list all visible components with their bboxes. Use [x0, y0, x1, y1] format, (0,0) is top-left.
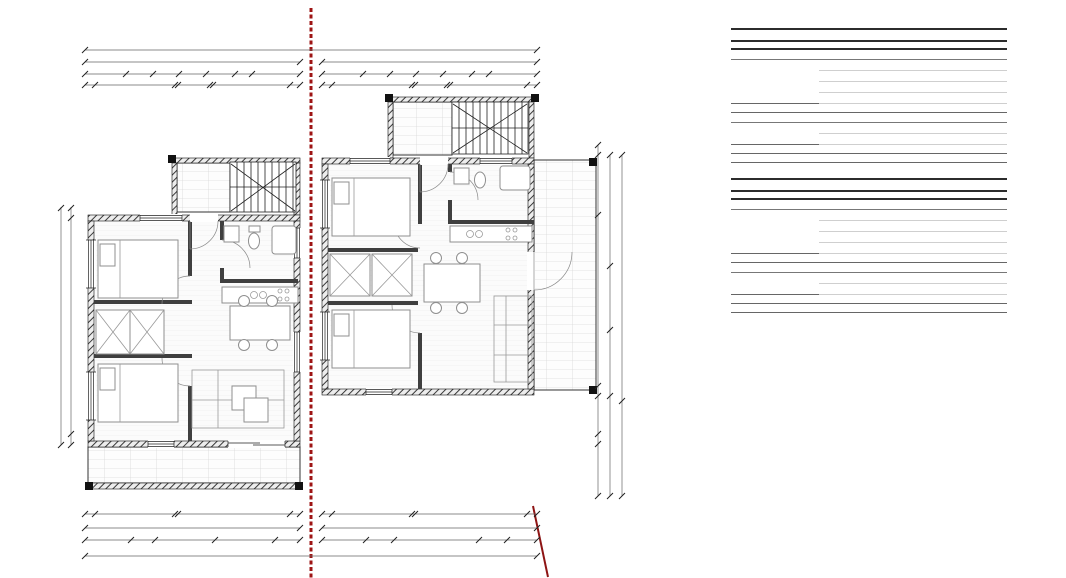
terrace-b [534, 160, 596, 390]
cell-povrsina [939, 232, 1007, 243]
cell-povrsina [939, 210, 1007, 221]
cell-prostorija [819, 134, 939, 145]
cell-prostorija [819, 273, 939, 284]
cell-pozicija [731, 134, 819, 145]
subtotal-value [939, 254, 1007, 263]
cell-povrsina [939, 284, 1007, 295]
area-table-kuca-b [731, 178, 1007, 313]
cell-prostorija [819, 82, 939, 93]
cell-povrsina [939, 82, 1007, 93]
subtotal-value [939, 145, 1007, 154]
subtotal-value [939, 104, 1007, 113]
cell-prostorija [819, 232, 939, 243]
table-row [731, 273, 1007, 284]
cell-pozicija [731, 221, 819, 232]
cell-prostorija [819, 243, 939, 254]
subtotal-row [731, 104, 1007, 113]
table-row [731, 123, 1007, 134]
cell-pozicija [731, 60, 819, 71]
table-row [731, 210, 1007, 221]
floor-plan-drawing [0, 0, 670, 578]
table-row [731, 82, 1007, 93]
floor-plan-page [0, 0, 1066, 578]
table-row [731, 134, 1007, 145]
cell-povrsina [939, 60, 1007, 71]
subtotal-row [731, 145, 1007, 154]
table-row [731, 232, 1007, 243]
cell-povrsina [939, 221, 1007, 232]
col-header-pozicija [731, 191, 819, 199]
total-row [731, 154, 1007, 163]
col-header-pozicija [731, 41, 819, 49]
section-label [731, 263, 1007, 273]
cell-pozicija [731, 284, 819, 295]
staircase-b [452, 102, 528, 154]
cell-povrsina [939, 134, 1007, 145]
area-table-kuca-a [731, 28, 1007, 163]
cell-prostorija [819, 71, 939, 82]
cell-pozicija [731, 82, 819, 93]
cell-prostorija [819, 284, 939, 295]
cell-povrsina [939, 93, 1007, 104]
table-a-title [731, 29, 1007, 41]
section-label [731, 113, 1007, 123]
section-label [731, 49, 1007, 60]
maison-logo [786, 452, 1066, 467]
cell-prostorija [819, 93, 939, 104]
cell-pozicija [731, 243, 819, 254]
col-header-povrsina [939, 191, 1007, 199]
cell-pozicija [731, 71, 819, 82]
table-row [731, 71, 1007, 82]
col-header-povrsina [939, 41, 1007, 49]
cell-povrsina [939, 243, 1007, 254]
cell-prostorija [819, 123, 939, 134]
cell-prostorija [819, 60, 939, 71]
cell-povrsina [939, 123, 1007, 134]
subtotal-value [939, 295, 1007, 304]
table-row [731, 60, 1007, 71]
table-row [731, 221, 1007, 232]
table-row [731, 284, 1007, 295]
cell-povrsina [939, 273, 1007, 284]
cell-prostorija [819, 210, 939, 221]
col-header-prostorija [819, 191, 939, 199]
table-row [731, 93, 1007, 104]
subtotal-row [731, 295, 1007, 304]
cell-pozicija [731, 210, 819, 221]
cell-pozicija [731, 93, 819, 104]
total-value [939, 304, 1007, 313]
cell-pozicija [731, 273, 819, 284]
total-value [939, 154, 1007, 163]
staircase-a [230, 162, 296, 212]
terrace-a [88, 447, 300, 483]
area-tables [731, 28, 1007, 328]
table-row [731, 243, 1007, 254]
total-row [731, 304, 1007, 313]
table-b-title [731, 179, 1007, 191]
cell-prostorija [819, 221, 939, 232]
cell-povrsina [939, 71, 1007, 82]
cell-pozicija [731, 123, 819, 134]
subtotal-row [731, 254, 1007, 263]
col-header-prostorija [819, 41, 939, 49]
cell-pozicija [731, 232, 819, 243]
section-label [731, 199, 1007, 210]
